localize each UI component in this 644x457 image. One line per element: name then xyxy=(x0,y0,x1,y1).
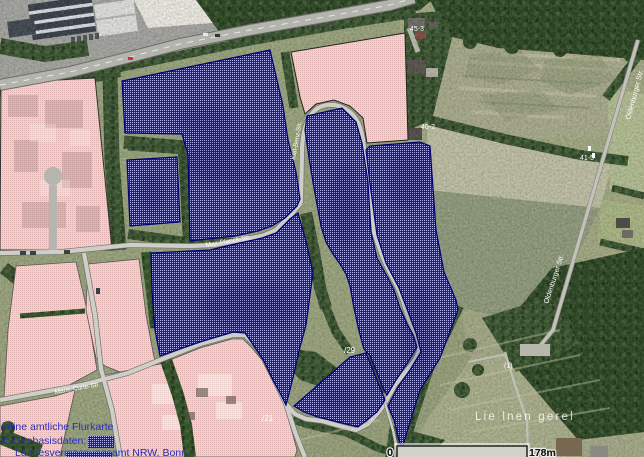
svg-text:178m: 178m xyxy=(529,447,556,457)
svg-text:keine amtliche Flurkarte: keine amtliche Flurkarte xyxy=(2,421,114,433)
svg-text:/29: /29 xyxy=(344,346,356,355)
svg-text:/21: /21 xyxy=(262,414,274,423)
svg-text:0: 0 xyxy=(387,447,393,457)
svg-text:Lie lnen gerel: Lie lnen gerel xyxy=(475,411,575,423)
svg-text:(1): (1) xyxy=(504,363,513,370)
svg-text:41-5: 41-5 xyxy=(580,155,594,162)
svg-text:40-2: 40-2 xyxy=(421,124,435,131)
svg-text:45-3: 45-3 xyxy=(410,26,424,33)
svg-text:© Geobasisdaten:: © Geobasisdaten: xyxy=(2,435,86,447)
